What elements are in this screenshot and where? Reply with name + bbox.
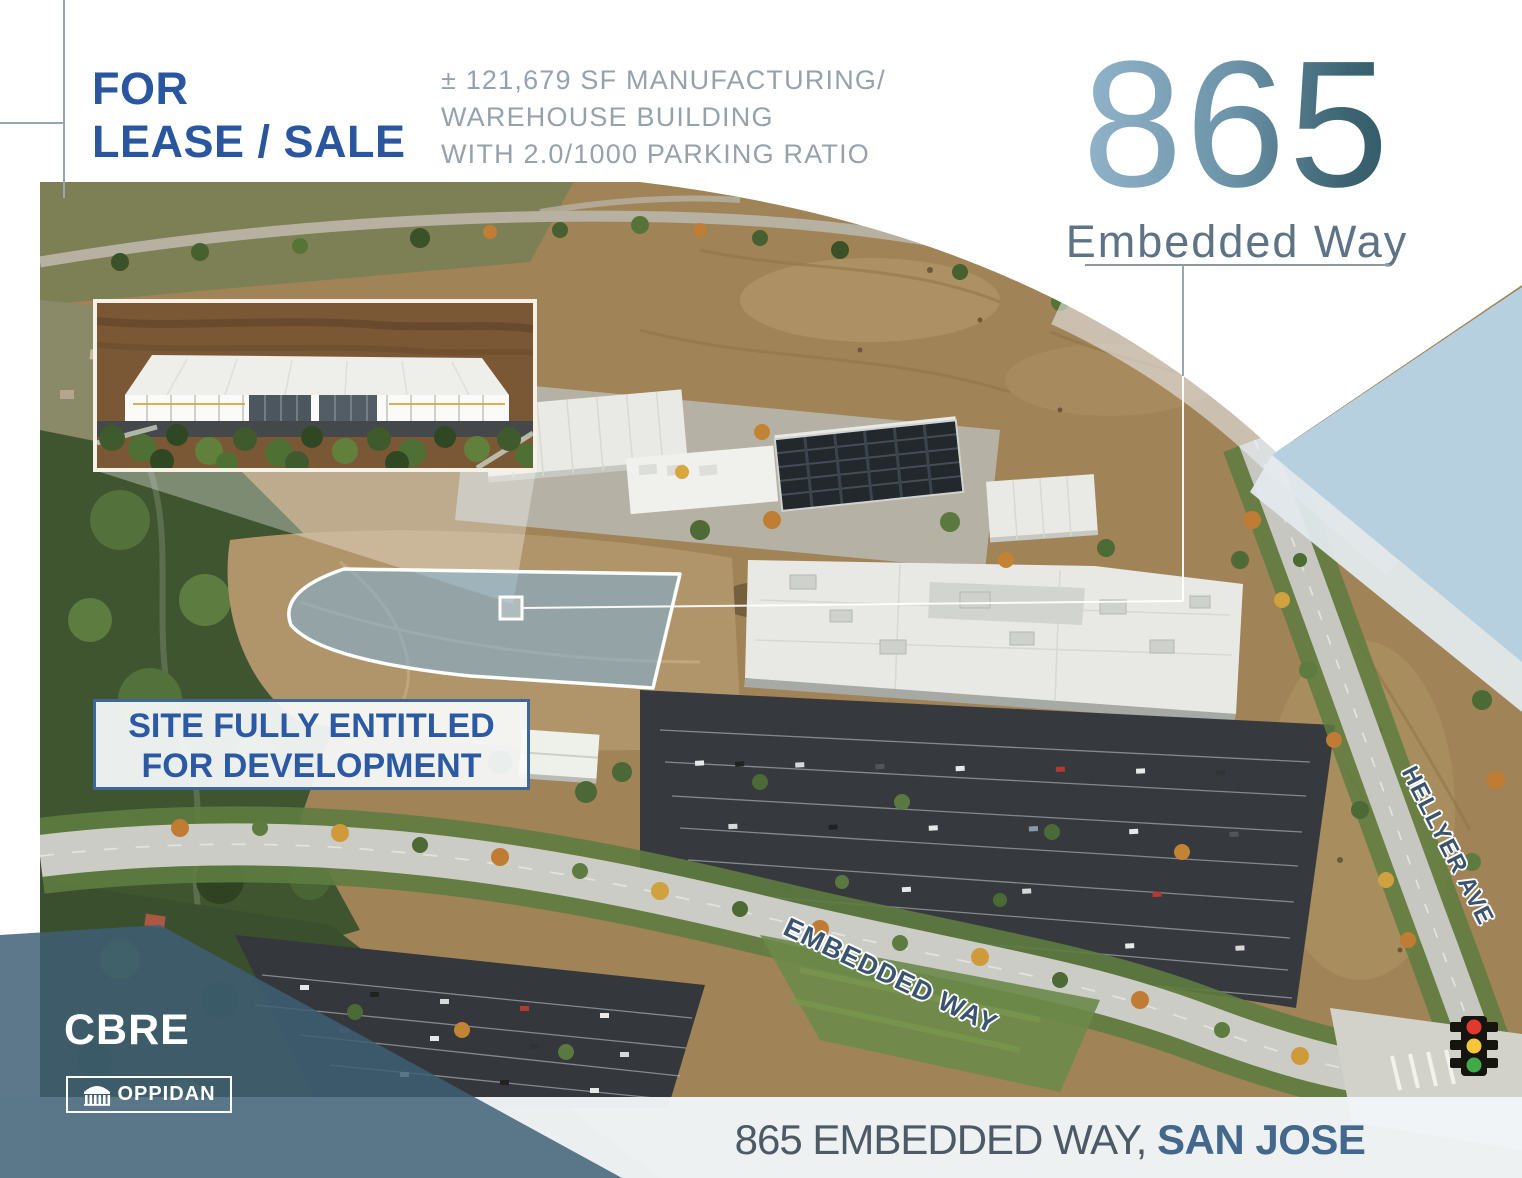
building-specs: ± 121,679 SF MANUFACTURING/ WAREHOUSE BU…	[441, 62, 886, 173]
specs-line1: ± 121,679 SF MANUFACTURING/	[441, 62, 886, 99]
address-number: 865	[1047, 36, 1427, 214]
listing-type-line1: FOR	[92, 62, 406, 115]
traffic-light-icon	[1448, 1016, 1500, 1080]
corner-accent-horizontal-line	[0, 122, 64, 124]
columns-building-icon	[82, 1084, 112, 1106]
cbre-logo: CBRE	[64, 1006, 190, 1055]
site-banner-line1: SITE FULLY ENTITLED	[96, 706, 527, 746]
listing-type: FOR LEASE / SALE	[92, 62, 406, 168]
site-banner-line2: FOR DEVELOPMENT	[96, 746, 527, 786]
listing-type-line2: LEASE / SALE	[92, 115, 406, 168]
oppidan-logo-text: OPPIDAN	[117, 1083, 215, 1106]
specs-line3: WITH 2.0/1000 PARKING RATIO	[441, 136, 886, 173]
address-street: Embedded Way	[1047, 216, 1427, 268]
building-rendering	[97, 303, 533, 468]
title-rule	[1085, 264, 1390, 266]
address-title-block: 865 Embedded Way	[1047, 36, 1427, 268]
site-banner: SITE FULLY ENTITLED FOR DEVELOPMENT	[93, 699, 530, 790]
oppidan-logo: OPPIDAN	[66, 1076, 232, 1113]
corner-accent-vertical-line	[63, 0, 65, 198]
flyer-canvas: 865 EMBEDDED WAY, SAN JOSE CBRE OPPIDAN	[0, 0, 1522, 1178]
rendering-inset	[93, 299, 537, 472]
specs-line2: WAREHOUSE BUILDING	[441, 99, 886, 136]
